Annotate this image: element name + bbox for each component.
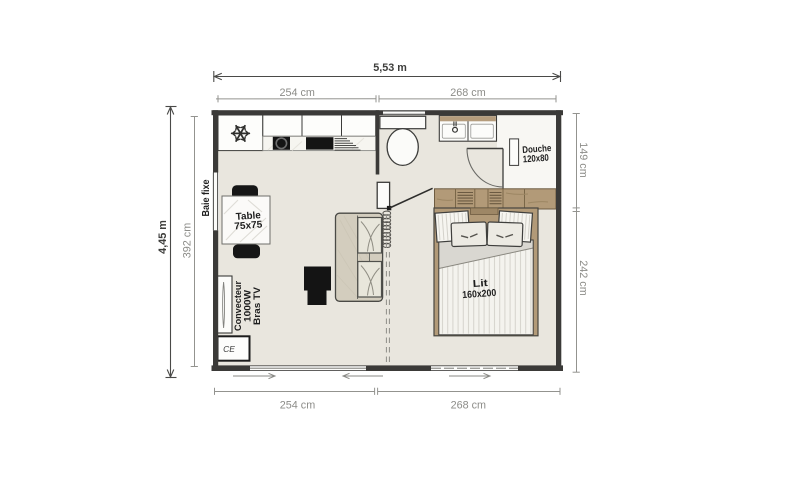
svg-text:254 cm: 254 cm <box>280 400 315 412</box>
svg-text:5,53 m: 5,53 m <box>373 62 407 74</box>
svg-text:254 cm: 254 cm <box>279 87 314 99</box>
svg-text:Bras TV: Bras TV <box>252 286 263 325</box>
svg-text:120x80: 120x80 <box>522 153 549 166</box>
svg-text:149 cm: 149 cm <box>577 142 589 177</box>
svg-text:4,45 m: 4,45 m <box>157 220 169 254</box>
svg-text:268 cm: 268 cm <box>450 87 485 99</box>
svg-text:242 cm: 242 cm <box>577 260 589 295</box>
svg-text:75x75: 75x75 <box>234 220 263 233</box>
svg-text:CE: CE <box>223 344 235 354</box>
svg-text:Baie fixe: Baie fixe <box>201 179 212 216</box>
svg-text:268 cm: 268 cm <box>451 400 486 412</box>
svg-text:392 cm: 392 cm <box>182 223 194 258</box>
